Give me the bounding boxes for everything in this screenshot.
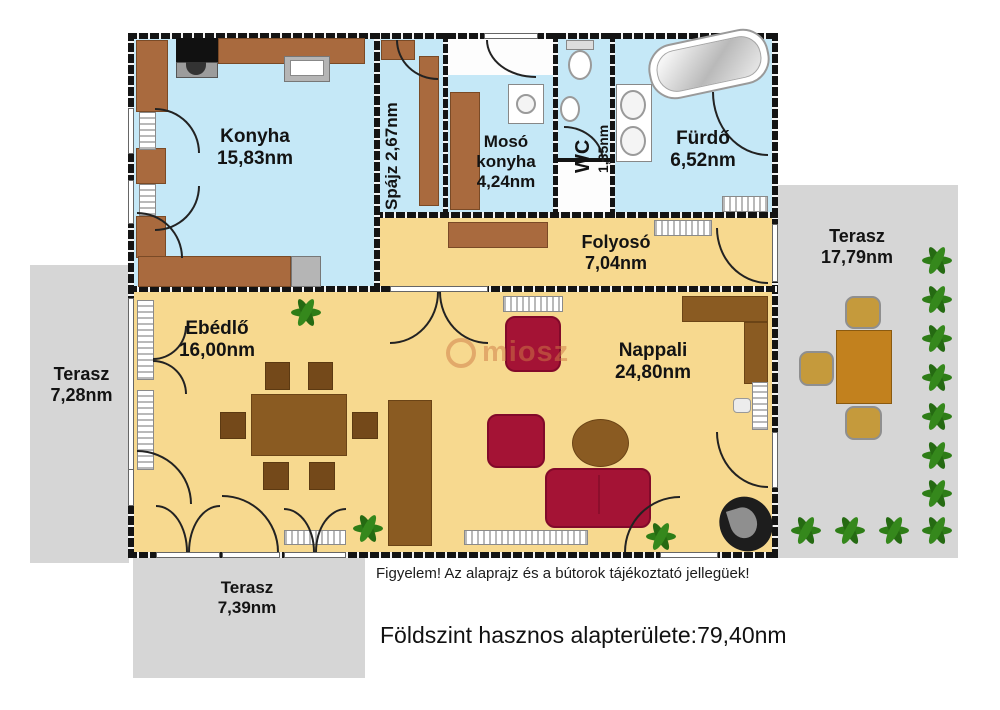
room-name: Folyosó	[581, 232, 650, 252]
radiator	[722, 196, 768, 212]
radiator	[139, 112, 156, 150]
stove	[176, 38, 218, 64]
coffee-table	[572, 419, 629, 467]
label-konyha: Konyha 15,83nm	[180, 126, 330, 171]
radiator	[752, 382, 768, 430]
terrace-chair	[845, 296, 881, 329]
wall	[374, 212, 778, 218]
wall	[553, 33, 558, 218]
potted-plant	[919, 475, 955, 511]
room-label: Spájz 2,67nm	[382, 102, 401, 210]
room-name: konyha	[476, 152, 536, 171]
dining-chair	[220, 412, 246, 439]
room-area: 4,24nm	[477, 172, 536, 191]
washbasin	[620, 90, 646, 120]
label-moso-konyha: Mosó konyha 4,24nm	[462, 132, 550, 192]
label-terasz-right: Terasz 17,79nm	[792, 226, 922, 268]
kitchen-counter	[138, 256, 291, 287]
label-ebedlo: Ebédlő 16,00nm	[158, 318, 276, 363]
terrace-chair	[845, 406, 882, 440]
washbasin	[620, 126, 646, 156]
dining-chair	[265, 362, 290, 390]
disclaimer-text: Figyelem! Az alaprajz és a bútorok tájék…	[376, 565, 750, 582]
floor-plan: Konyha 15,83nm Spájz 2,67nm Mosó konyha …	[0, 0, 1000, 710]
kitchen-sink-basin	[290, 60, 324, 76]
radiator	[464, 530, 588, 545]
potted-plant	[288, 294, 324, 330]
room-name: Nappali	[619, 340, 688, 361]
toilet	[568, 50, 592, 80]
shelf-unit	[744, 322, 768, 384]
toilet-tank	[566, 40, 594, 50]
hallway-sideboard	[448, 222, 548, 248]
room-area: 15,83nm	[217, 148, 293, 169]
terrace-chair	[799, 351, 834, 386]
potted-plant	[919, 359, 955, 395]
potted-plant	[788, 512, 824, 548]
watermark-ring-icon	[446, 338, 476, 368]
room-area: 16,00nm	[179, 340, 255, 361]
label-terasz-left: Terasz 7,28nm	[34, 364, 129, 406]
dining-chair	[352, 412, 378, 439]
potted-plant	[832, 512, 868, 548]
potted-plant	[350, 510, 386, 546]
terrace-left	[30, 265, 129, 563]
terrace-name: Terasz	[829, 226, 885, 246]
potted-plant	[919, 512, 955, 548]
room-name: Ebédlő	[185, 318, 248, 339]
room-area: 6,52nm	[670, 150, 735, 171]
label-furdo: Fürdő 6,52nm	[648, 128, 758, 173]
dining-chair	[308, 362, 333, 390]
room-name: Konyha	[220, 126, 290, 147]
label-wc: WC 1,35nm	[572, 88, 611, 173]
radiator	[139, 184, 156, 216]
thermostat	[733, 398, 751, 413]
potted-plant	[876, 512, 912, 548]
kitchen-cabinet	[136, 148, 166, 184]
dining-chair	[309, 462, 335, 490]
door-opening	[772, 432, 778, 488]
terrace-area: 7,39nm	[218, 598, 277, 617]
terrace-area: 7,28nm	[50, 385, 112, 405]
potted-plant	[919, 242, 955, 278]
radiator	[503, 296, 563, 312]
wall	[443, 33, 448, 218]
terrace-name: Terasz	[221, 578, 274, 597]
window	[128, 180, 134, 224]
watermark-text: miosz	[482, 336, 569, 369]
room-area: 7,04nm	[585, 253, 647, 273]
label-nappali: Nappali 24,80nm	[592, 340, 714, 385]
door-opening	[156, 552, 220, 558]
total-area-text: Földszint hasznos alapterülete:79,40nm	[380, 622, 787, 649]
potted-plant	[919, 437, 955, 473]
potted-plant	[919, 320, 955, 356]
room-name: WC	[572, 88, 595, 173]
tall-cabinet	[388, 400, 432, 546]
dining-chair	[263, 462, 289, 490]
shelf-unit	[682, 296, 768, 322]
armchair	[487, 414, 545, 468]
room-name: Mosó	[484, 132, 528, 151]
radiator	[137, 300, 154, 380]
potted-plant	[919, 398, 955, 434]
terrace-table	[836, 330, 892, 404]
washing-machine-door	[516, 94, 536, 114]
room-area: 24,80nm	[615, 362, 691, 383]
room-name: Fürdő	[676, 128, 730, 149]
door-opening	[222, 552, 280, 558]
watermark-logo: miosz	[446, 336, 569, 369]
door-opening	[484, 33, 538, 39]
label-spajz: Spájz 2,67nm	[382, 55, 402, 210]
potted-plant	[919, 281, 955, 317]
label-terasz-bottom: Terasz 7,39nm	[172, 578, 322, 618]
terrace-name: Terasz	[54, 364, 110, 384]
door-opening	[772, 224, 778, 282]
wall	[374, 33, 380, 292]
label-folyoso: Folyosó 7,04nm	[556, 232, 676, 274]
door-opening	[284, 552, 346, 558]
kitchen-counter-end	[291, 256, 321, 287]
dining-table	[251, 394, 347, 456]
room-area: 1,35nm	[595, 88, 611, 173]
window	[128, 108, 134, 154]
terrace-area: 17,79nm	[821, 247, 893, 267]
kitchen-cabinet	[136, 40, 168, 112]
